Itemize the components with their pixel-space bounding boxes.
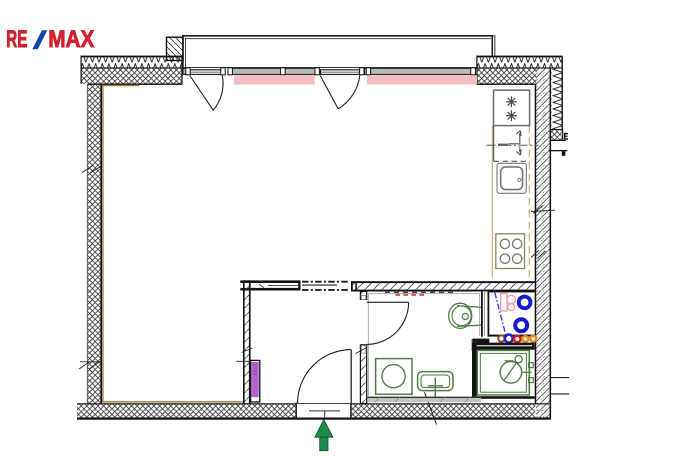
- svg-text:MAX: MAX: [48, 26, 94, 53]
- svg-text:RE: RE: [6, 26, 27, 53]
